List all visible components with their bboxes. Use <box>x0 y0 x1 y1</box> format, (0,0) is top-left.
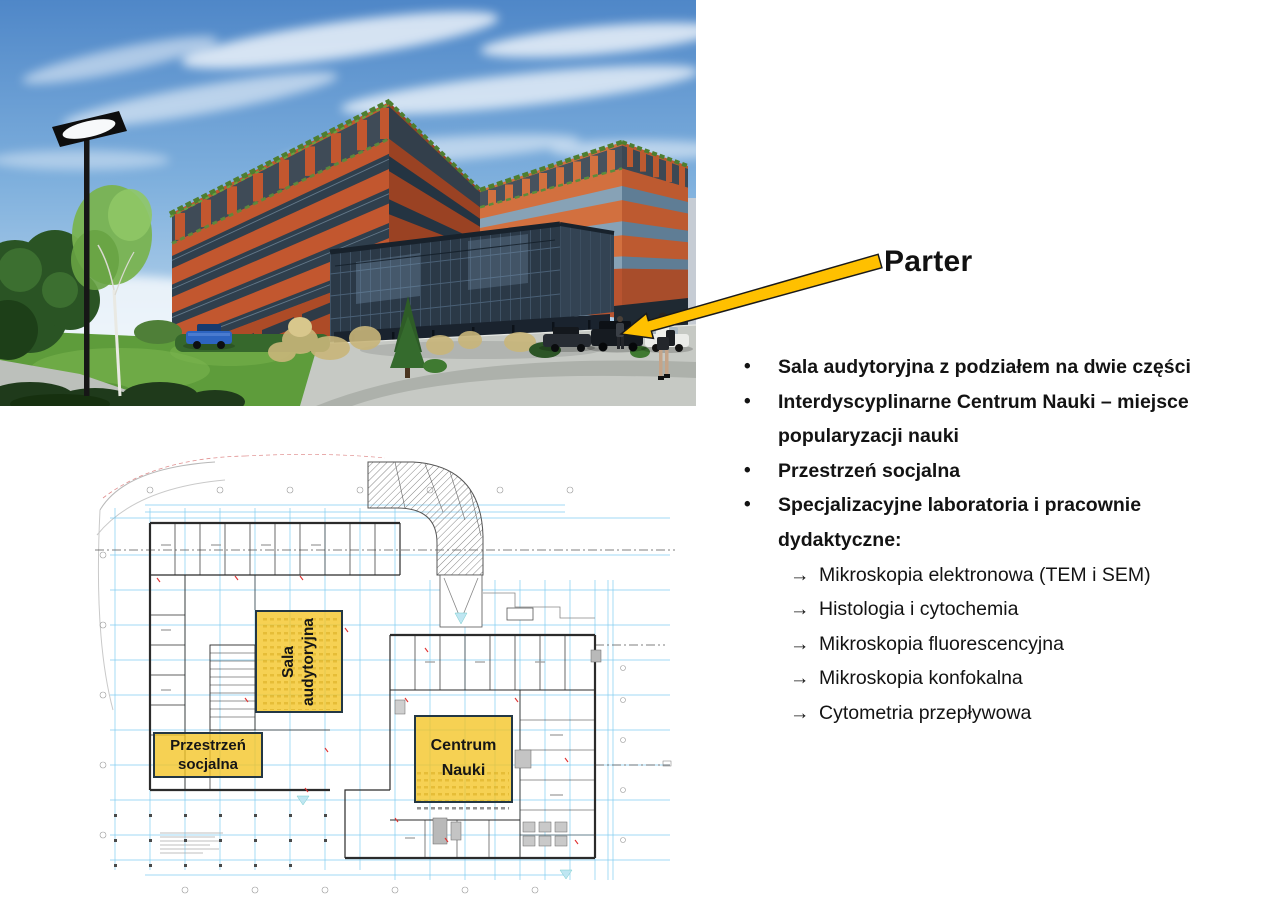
arrow-bullet-icon: → <box>790 558 819 593</box>
bullet-item: →Mikroskopia fluorescencyjna <box>790 627 1268 662</box>
arrow-shape <box>621 254 882 338</box>
plan-label-science: Centrum Nauki <box>416 734 511 784</box>
bullet-item: •Przestrzeń socjalna <box>744 454 1268 489</box>
callout-arrow <box>600 240 900 350</box>
arrow-bullet-icon: → <box>790 696 819 731</box>
bullet-text: Cytometria przepływowa <box>819 696 1268 731</box>
arrow-bullet-icon: → <box>790 592 819 627</box>
bullet-text: Specjalizacyjne laboratoria i pracownie … <box>778 488 1268 557</box>
bullet-item: →Mikroskopia konfokalna <box>790 661 1268 696</box>
plan-label-auditorium: Sala audytoryjna <box>279 610 319 713</box>
bullet-text: Przestrzeń socjalna <box>778 454 1268 489</box>
bullet-item: →Mikroskopia elektronowa (TEM i SEM) <box>790 558 1268 593</box>
plan-highlight-auditorium: Sala audytoryjna <box>255 610 343 713</box>
building-photo <box>0 0 696 406</box>
plan-label-social: Przestrzeń socjalna <box>155 736 261 775</box>
bullet-text: Sala audytoryjna z podziałem na dwie czę… <box>778 350 1268 385</box>
bullet-dot-icon: • <box>744 454 778 489</box>
plan-note-block <box>160 833 223 853</box>
arrow-bullet-icon: → <box>790 627 819 662</box>
bullet-text: Mikroskopia fluorescencyjna <box>819 627 1268 662</box>
bullet-text: Mikroskopia konfokalna <box>819 661 1268 696</box>
bullet-text: Mikroskopia elektronowa (TEM i SEM) <box>819 558 1268 593</box>
bullet-item: •Sala audytoryjna z podziałem na dwie cz… <box>744 350 1268 385</box>
bullet-item: •Interdyscyplinarne Centrum Nauki – miej… <box>744 385 1268 454</box>
page-title: Parter <box>884 245 973 279</box>
bullet-item: •Specjalizacyjne laboratoria i pracownie… <box>744 488 1268 557</box>
bullet-list: •Sala audytoryjna z podziałem na dwie cz… <box>744 350 1268 731</box>
bullet-text: Histologia i cytochemia <box>819 592 1268 627</box>
plan-highlight-science: Centrum Nauki <box>414 715 513 803</box>
bullet-dot-icon: • <box>744 385 778 454</box>
plan-columns <box>114 814 327 867</box>
bullet-text: Interdyscyplinarne Centrum Nauki – miejs… <box>778 385 1268 454</box>
floor-plan: Sala audytoryjna Przestrzeń socjalna Cen… <box>95 450 675 900</box>
bullet-dot-icon: • <box>744 488 778 557</box>
bullet-dot-icon: • <box>744 350 778 385</box>
bullet-item: →Cytometria przepływowa <box>790 696 1268 731</box>
plan-highlight-social: Przestrzeń socjalna <box>153 732 263 778</box>
arrow-bullet-icon: → <box>790 661 819 696</box>
entrance-canopy <box>368 462 595 627</box>
bullet-item: →Histologia i cytochemia <box>790 592 1268 627</box>
